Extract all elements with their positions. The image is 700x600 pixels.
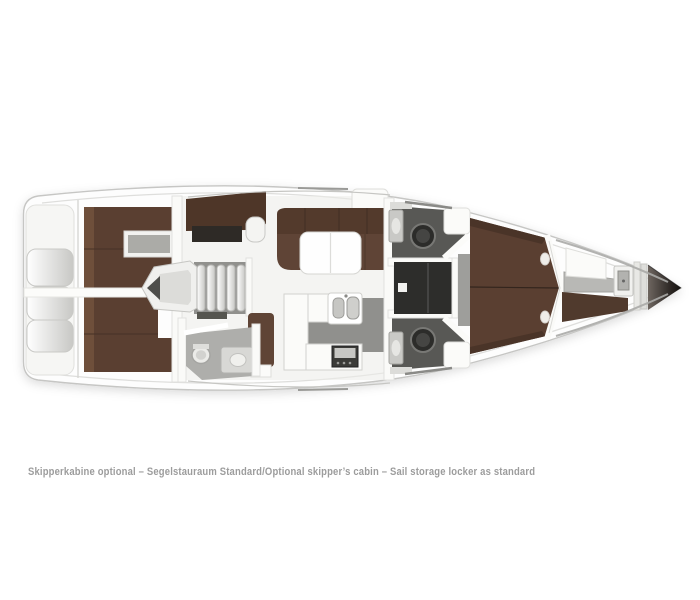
stair-shadow-slot <box>197 312 227 319</box>
caption: Skipperkabine optional – Segelstauraum S… <box>28 466 535 478</box>
head-corner-cabinet <box>444 208 470 234</box>
stair-tread <box>207 265 215 311</box>
stair-tread <box>227 265 235 311</box>
center-walkway <box>24 288 146 297</box>
corridor-door-handle <box>398 283 407 292</box>
aft-berth-starboard-foot <box>158 338 172 372</box>
berth-step-recess-tray <box>128 235 170 253</box>
pillow <box>541 253 550 265</box>
stair-tread <box>237 265 245 311</box>
nav-seat <box>246 217 265 242</box>
sink-basin <box>347 297 359 319</box>
cabinet-handle <box>622 280 625 283</box>
companionway <box>142 258 252 319</box>
deck-trim <box>298 389 348 390</box>
stove-top <box>335 348 356 358</box>
galley-stove <box>332 346 358 367</box>
nav-station <box>186 191 266 242</box>
head-corner-cabinet <box>444 342 470 368</box>
forward-heads <box>384 198 471 380</box>
sink-basin <box>333 298 344 318</box>
sink <box>392 340 401 356</box>
swim-step <box>27 320 73 352</box>
skipper-cabin <box>562 248 681 322</box>
aft-head-wall <box>252 324 260 376</box>
galley-sink <box>328 293 362 324</box>
aft-head-wall <box>178 318 186 382</box>
yacht-floorplan-figure: Skipperkabine optional – Segelstauraum S… <box>0 0 700 600</box>
toilet-tank <box>193 344 209 349</box>
sink <box>392 218 401 234</box>
owner-cabin-entry-floor <box>458 254 471 326</box>
stair-tread <box>217 265 225 311</box>
stair-tread <box>197 265 205 311</box>
stove-knob <box>349 362 352 365</box>
sink <box>230 354 246 367</box>
galley-counter-leg <box>284 294 308 370</box>
companionway-stairs <box>197 265 245 311</box>
swim-step <box>27 249 73 286</box>
owner-cabin <box>470 218 562 354</box>
settee-backrest <box>277 208 385 234</box>
salon-table <box>300 232 361 274</box>
yacht-floorplan <box>0 0 700 600</box>
faucet <box>344 294 347 297</box>
deck-trim <box>298 188 348 189</box>
toilet-bowl <box>416 333 430 347</box>
stove-knob <box>343 362 346 365</box>
toilet-bowl <box>196 350 206 360</box>
pillow <box>541 311 550 323</box>
stair-side-wall <box>246 258 252 316</box>
sail-storage-locker <box>648 265 681 310</box>
instrument-panel <box>192 226 242 242</box>
stove-knob <box>337 362 340 365</box>
toilet-bowl <box>416 229 430 243</box>
corridor-frame <box>452 258 458 318</box>
